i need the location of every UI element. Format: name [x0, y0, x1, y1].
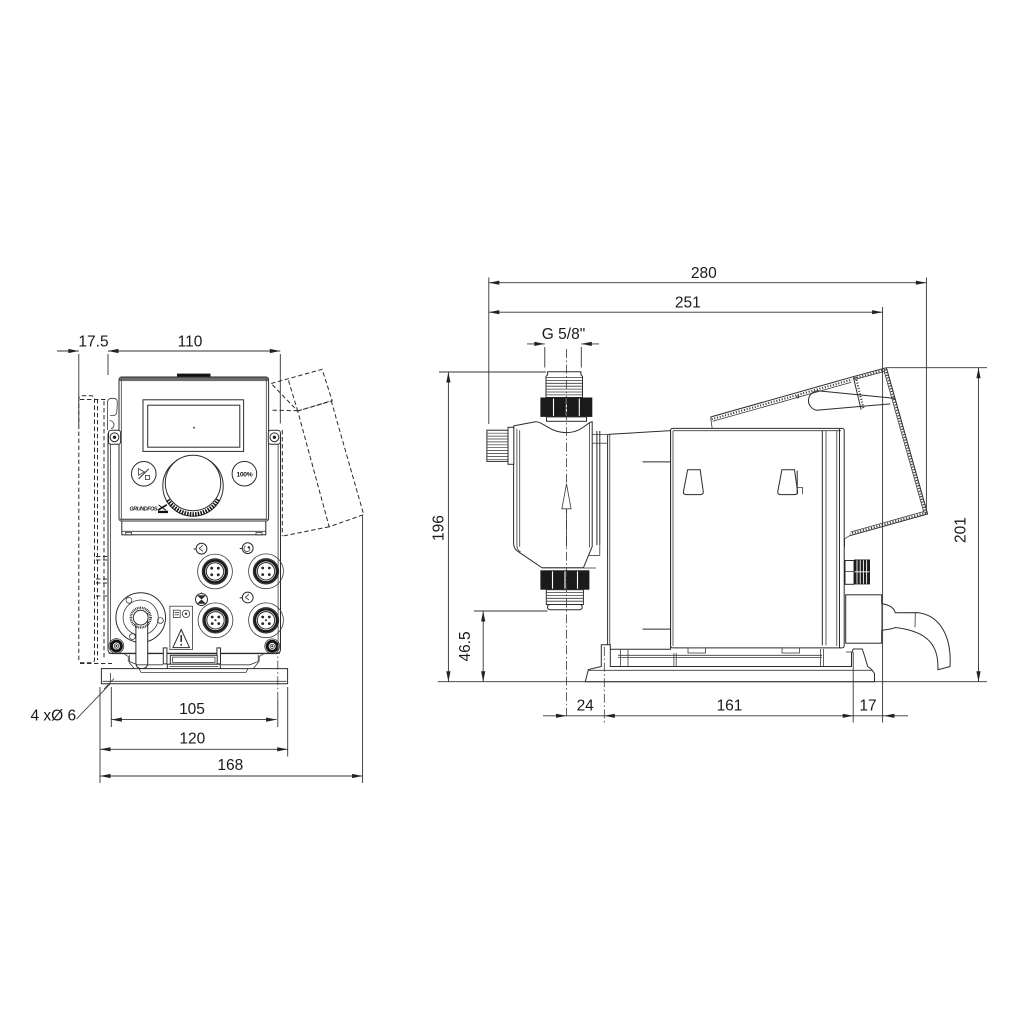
svg-text:17: 17 [859, 698, 876, 715]
svg-text:4 xØ 6: 4 xØ 6 [31, 708, 77, 725]
svg-text:168: 168 [217, 757, 243, 774]
svg-text:110: 110 [178, 334, 203, 351]
svg-text:G 5/8": G 5/8" [542, 326, 585, 343]
svg-text:17.5: 17.5 [78, 334, 108, 351]
svg-text:280: 280 [691, 265, 717, 282]
svg-text:201: 201 [953, 517, 970, 543]
svg-text:120: 120 [179, 731, 205, 748]
svg-text:100%: 100% [236, 472, 252, 479]
svg-text:46.5: 46.5 [457, 631, 474, 661]
svg-text:251: 251 [675, 295, 701, 312]
svg-text:GRUNDFOS: GRUNDFOS [130, 507, 158, 513]
svg-text:105: 105 [179, 701, 205, 718]
svg-text:24: 24 [577, 698, 595, 715]
svg-text:161: 161 [717, 698, 743, 715]
svg-text:196: 196 [431, 515, 448, 541]
